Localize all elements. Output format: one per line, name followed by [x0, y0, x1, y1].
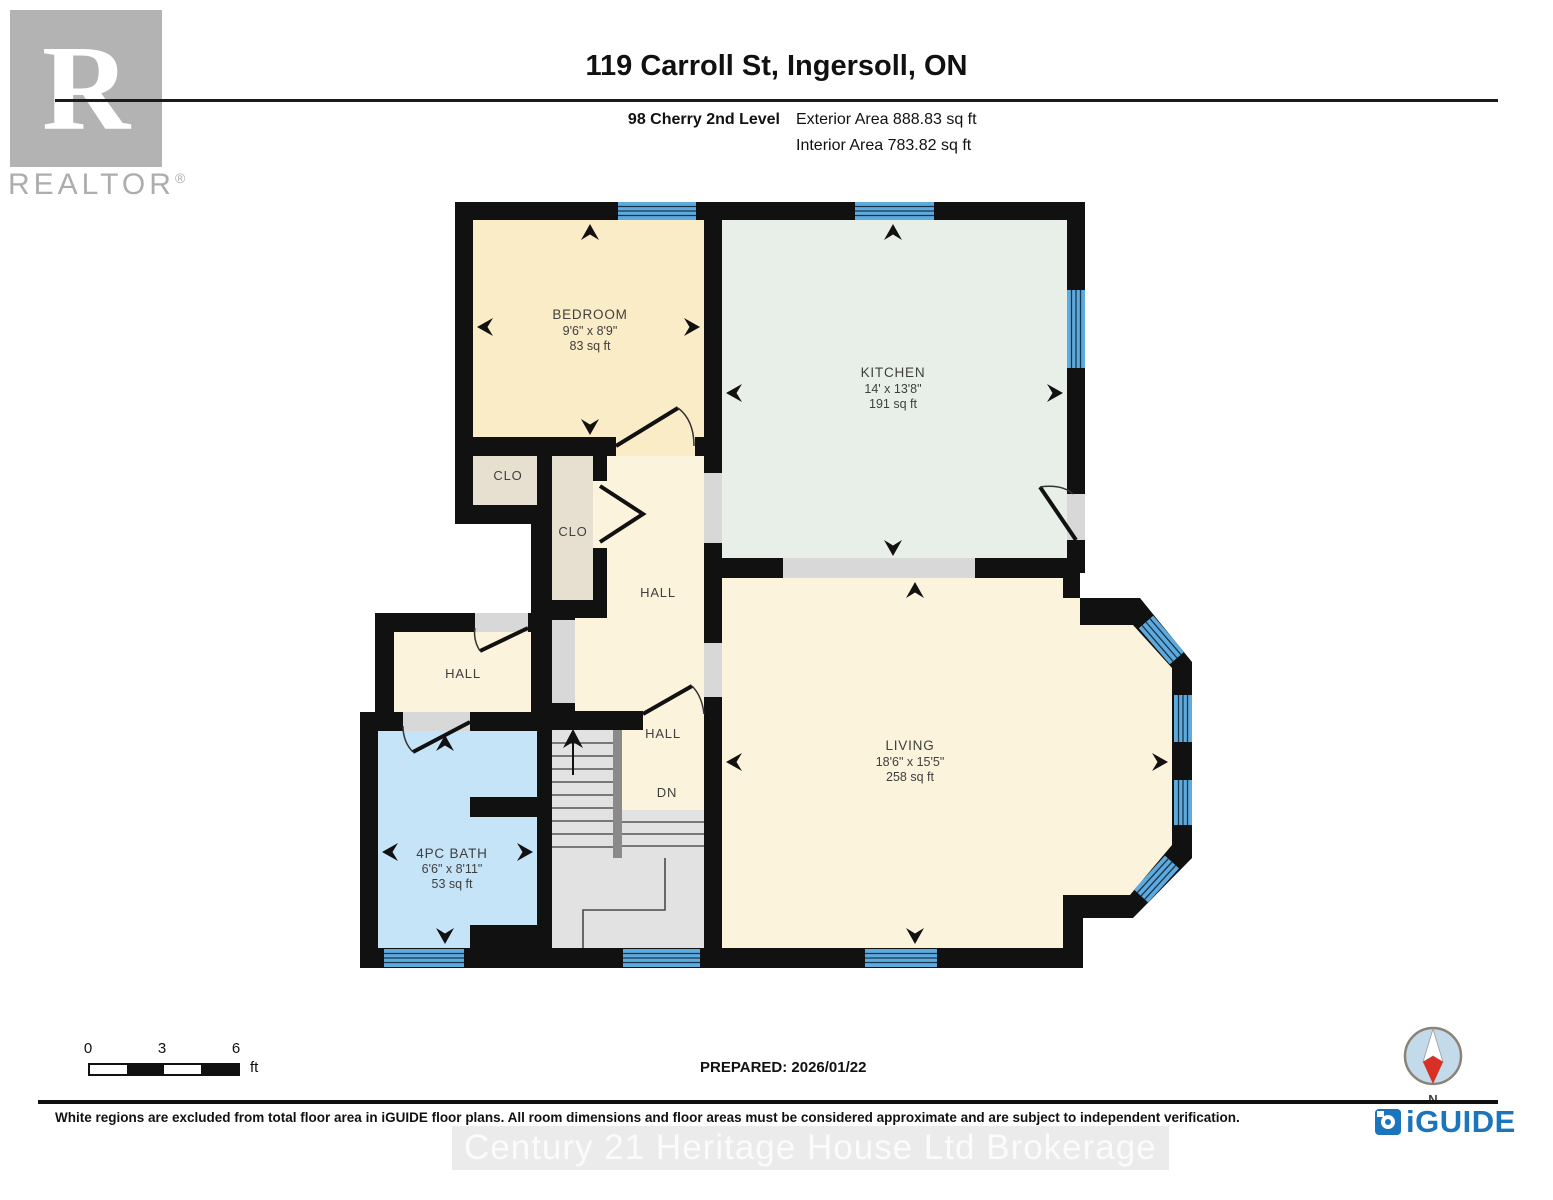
- stairs-down-label: DN: [657, 785, 677, 800]
- bath-dims: 6'6" x 8'11": [422, 862, 483, 876]
- disclaimer-text: White regions are excluded from total fl…: [55, 1110, 1240, 1125]
- room-bath-floor: [378, 731, 537, 948]
- bath-label: 4PC BATH: [416, 846, 487, 861]
- stairs-upper-flight: [552, 730, 613, 858]
- scale-bar: 0 3 6 ft: [80, 1040, 300, 1085]
- bath-corner-wall: [470, 925, 537, 948]
- window-kitchen-top: [855, 202, 934, 220]
- brokerage-watermark: Century 21 Heritage House Ltd Brokerage: [452, 1126, 1169, 1170]
- room-living-floor: [722, 578, 1172, 948]
- footer-divider: [38, 1100, 1498, 1104]
- bath-area: 53 sq ft: [432, 877, 474, 891]
- scale-unit: ft: [250, 1059, 258, 1076]
- window-bedroom-top: [618, 202, 696, 220]
- room-hall-center-floor-ext: [575, 618, 607, 711]
- bedroom-area: 83 sq ft: [570, 339, 612, 353]
- kitchen-area: 191 sq ft: [869, 397, 917, 411]
- living-area: 258 sq ft: [886, 770, 934, 784]
- hall-connector-opening: [552, 620, 575, 703]
- compass-rose-icon: N: [1398, 1018, 1470, 1110]
- iguide-wordmark: iGUIDE: [1406, 1104, 1516, 1140]
- bath-partition-wall: [470, 797, 545, 817]
- window-bay-right-1: [1174, 695, 1192, 742]
- prepared-date: PREPARED: 2026/01/22: [700, 1059, 866, 1076]
- opening-hall-living: [704, 643, 722, 697]
- opening-hall-kitchen: [704, 473, 722, 543]
- scale-tick-0: 0: [84, 1040, 92, 1057]
- hall-center-label: HALL: [640, 585, 676, 600]
- bedroom-dims: 9'6" x 8'9": [563, 324, 618, 338]
- kitchen-dims: 14' x 13'8": [864, 382, 921, 396]
- iguide-logo: iGUIDE: [1374, 1104, 1516, 1140]
- stairs-landing: [552, 858, 704, 948]
- opening-kitchen-living: [783, 558, 975, 578]
- hall-lower-label: HALL: [645, 726, 681, 741]
- living-dims: 18'6" x 15'5": [876, 755, 945, 769]
- floorplan-drawing: BEDROOM 9'6" x 8'9" 83 sq ft KITCHEN 14'…: [0, 0, 1553, 1200]
- stairs-divider: [613, 730, 622, 858]
- opening-hall-left-door: [475, 613, 528, 632]
- hall-left-label: HALL: [445, 666, 481, 681]
- window-bay-right-2: [1174, 780, 1192, 825]
- living-label: LIVING: [885, 738, 934, 753]
- iguide-camera-icon: [1374, 1108, 1402, 1136]
- bedroom-label: BEDROOM: [552, 307, 627, 322]
- floorplan-page: R REALTOR® 119 Carroll St, Ingersoll, ON…: [0, 0, 1553, 1200]
- scale-tick-3: 3: [158, 1040, 166, 1057]
- room-hall-center-floor: [607, 456, 704, 711]
- scale-bar-segments: [88, 1063, 240, 1076]
- kitchen-label: KITCHEN: [861, 365, 926, 380]
- closet-tall-label: CLO: [558, 524, 587, 539]
- window-living-bottom: [865, 949, 937, 967]
- window-landing-bottom: [623, 949, 700, 967]
- scale-tick-6: 6: [232, 1040, 240, 1057]
- window-bath-bottom: [384, 949, 464, 967]
- window-kitchen-right: [1067, 290, 1085, 368]
- closet-small-label: CLO: [493, 468, 522, 483]
